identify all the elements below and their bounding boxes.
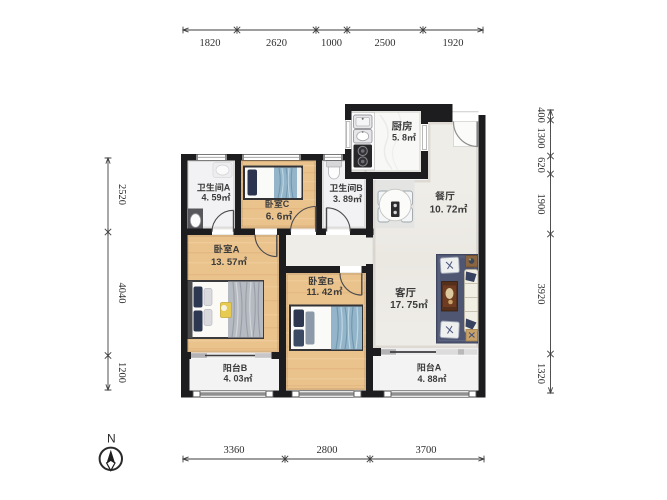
svg-text:B: B (356, 183, 363, 193)
svg-text:3920: 3920 (535, 284, 546, 305)
svg-text:2620: 2620 (266, 38, 287, 49)
svg-text:A: A (224, 183, 231, 193)
svg-text:5. 8: 5. 8 (392, 133, 407, 143)
svg-text:3360: 3360 (224, 445, 245, 456)
svg-text:11. 42: 11. 42 (307, 287, 333, 298)
svg-text:10. 72: 10. 72 (430, 205, 458, 216)
svg-text:2800: 2800 (317, 445, 338, 456)
svg-text:13. 57: 13. 57 (211, 257, 237, 268)
svg-text:400: 400 (535, 107, 546, 123)
svg-text:1000: 1000 (321, 38, 342, 49)
svg-text:17. 75: 17. 75 (390, 300, 418, 311)
svg-text:4. 88: 4. 88 (418, 374, 438, 384)
svg-text:4. 03: 4. 03 (224, 374, 244, 384)
svg-text:B: B (327, 276, 334, 287)
svg-text:1920: 1920 (443, 38, 464, 49)
svg-text:4. 59: 4. 59 (202, 193, 222, 203)
svg-text:4040: 4040 (116, 283, 127, 304)
svg-text:620: 620 (535, 157, 546, 173)
svg-text:3700: 3700 (416, 445, 437, 456)
svg-text:C: C (283, 199, 290, 209)
svg-text:B: B (241, 363, 248, 373)
svg-text:1200: 1200 (116, 362, 127, 383)
svg-text:1300: 1300 (535, 128, 546, 149)
svg-text:A: A (435, 363, 442, 373)
svg-text:1320: 1320 (535, 363, 546, 384)
svg-text:A: A (233, 244, 240, 255)
svg-text:6. 6: 6. 6 (266, 212, 283, 223)
svg-text:3. 89: 3. 89 (333, 194, 353, 204)
svg-text:1900: 1900 (535, 194, 546, 215)
svg-text:1820: 1820 (200, 38, 221, 49)
svg-text:N: N (107, 432, 116, 446)
svg-text:2500: 2500 (375, 38, 396, 49)
svg-text:2520: 2520 (116, 184, 127, 205)
